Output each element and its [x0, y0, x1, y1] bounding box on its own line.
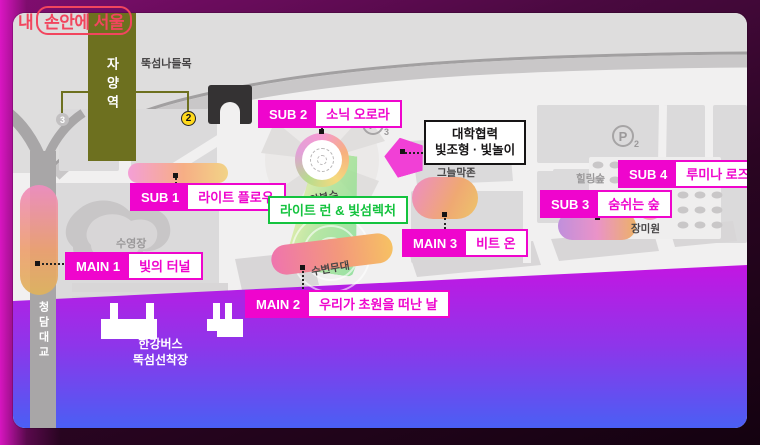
- jayang-station-bar: 자양역: [88, 13, 136, 161]
- main3-dot: [442, 212, 447, 217]
- exit3-line-v: [61, 91, 63, 113]
- interchange-label: 뚝섬나들목: [141, 55, 192, 71]
- pool-label: 수영장: [116, 235, 146, 251]
- festival-map-poster: 자양역 3 2 뚝섬나들목 P 3 P 2: [0, 0, 760, 445]
- sub1-dot: [173, 173, 178, 178]
- sub2-dot: [319, 129, 324, 134]
- main1-connector: [42, 263, 64, 265]
- main2-dot: [300, 265, 305, 270]
- venue-label-sub1: SUB 1 라이트 플로우: [130, 183, 286, 211]
- exit3-line: [61, 91, 89, 93]
- venue-label-sub4: SUB 4 루미나 로즈: [618, 160, 747, 188]
- rose-garden-label: 장미원: [631, 221, 660, 236]
- main2-connector: [302, 271, 304, 289]
- exit2-line-v: [187, 91, 189, 111]
- tunnel-gate-icon: [208, 85, 252, 124]
- station-exit-2: 2: [181, 111, 196, 126]
- station-name: 자양역: [103, 57, 122, 161]
- main1-dot: [35, 261, 40, 266]
- music-fountain-icon: [295, 133, 349, 187]
- logo-boxed-text: 손안에 서울: [36, 6, 132, 35]
- map-panel: 자양역 3 2 뚝섬나들목 P 3 P 2: [13, 13, 747, 428]
- main3-connector: [444, 218, 446, 229]
- light-flow-installation: [128, 163, 228, 183]
- venue-label-main3: MAIN 3 비트 온: [402, 229, 528, 257]
- healing-forest-label: 힐링숲: [576, 171, 605, 186]
- venue-label-main2: MAIN 2 우리가 초원을 떠난 날: [245, 290, 450, 318]
- ferry-terminal-label: 한강버스 뚝섬선착장: [108, 336, 213, 368]
- station-exit-3: 3: [56, 113, 69, 126]
- venue-label-sub2: SUB 2 소닉 오로라: [258, 100, 402, 128]
- parking-icon-p2: P 2: [612, 125, 634, 147]
- bridge-label: 청담대교: [35, 301, 51, 361]
- venue-label-main1: MAIN 1 빛의 터널: [65, 252, 203, 280]
- univ-dot: [400, 149, 405, 154]
- seoul-in-my-hand-logo: 내 손안에 서울: [18, 6, 132, 35]
- univ-collab-box: 대학협력 빛조형 · 빛놀이: [424, 120, 526, 165]
- light-tunnel-installation: [20, 185, 58, 295]
- venue-label-sub3: SUB 3 숨쉬는 숲: [540, 190, 672, 218]
- logo-prefix: 내: [18, 8, 33, 33]
- exit2-line: [135, 91, 189, 93]
- light-run-box: 라이트 런 & 빛섬렉처: [268, 196, 408, 224]
- univ-connector: [405, 152, 423, 154]
